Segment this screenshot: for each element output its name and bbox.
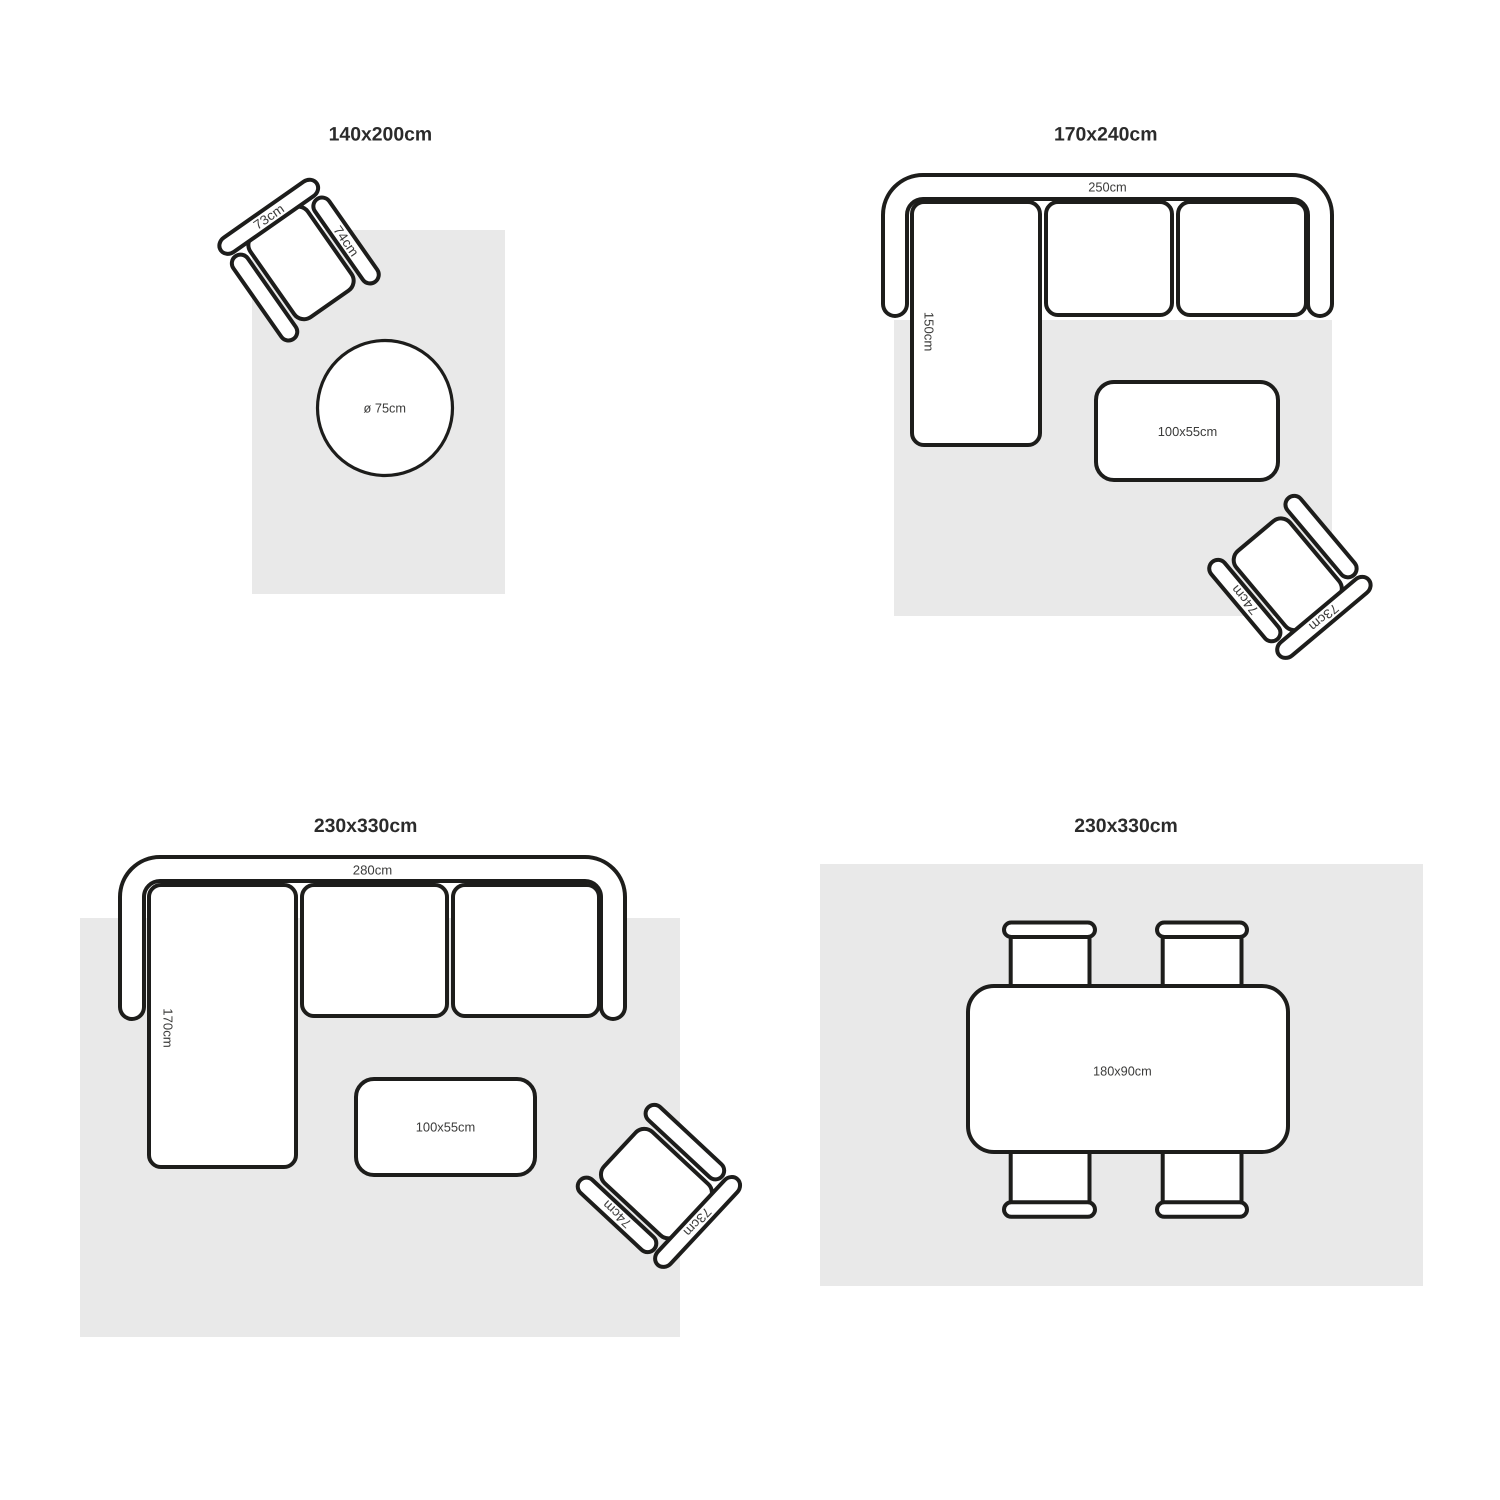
svg-text:230x330cm: 230x330cm bbox=[314, 815, 418, 837]
svg-text:170cm: 170cm bbox=[161, 1008, 176, 1048]
svg-text:230x330cm: 230x330cm bbox=[1074, 815, 1178, 837]
svg-text:250cm: 250cm bbox=[1088, 180, 1127, 195]
svg-text:140x200cm: 140x200cm bbox=[329, 124, 433, 146]
svg-text:280cm: 280cm bbox=[353, 863, 393, 878]
svg-text:150cm: 150cm bbox=[922, 312, 937, 352]
svg-text:100x55cm: 100x55cm bbox=[1158, 424, 1218, 439]
svg-text:180x90cm: 180x90cm bbox=[1093, 1064, 1152, 1079]
svg-text:100x55cm: 100x55cm bbox=[416, 1120, 476, 1135]
svg-text:ø 75cm: ø 75cm bbox=[364, 401, 407, 416]
svg-text:170x240cm: 170x240cm bbox=[1054, 124, 1158, 146]
